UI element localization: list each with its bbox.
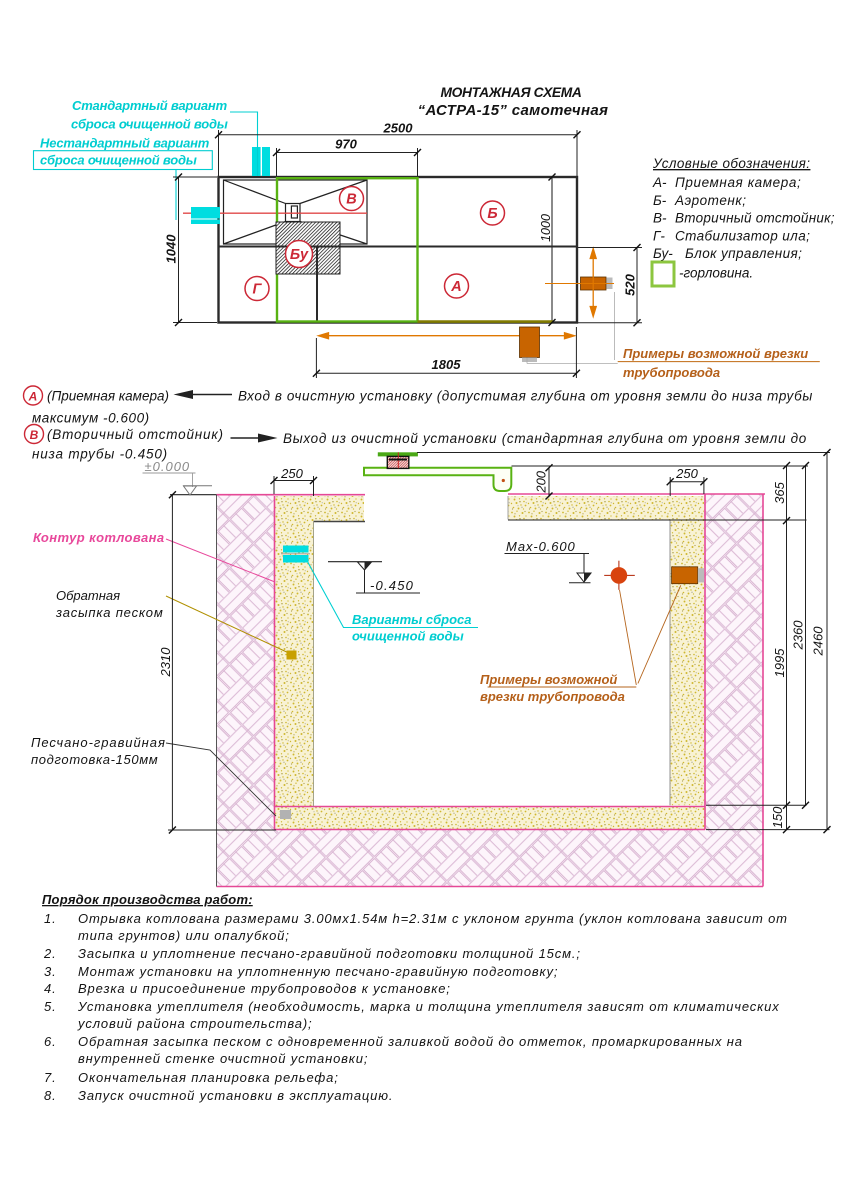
svg-text:2310: 2310 [158,647,173,678]
svg-text:Б-: Б- [653,193,667,208]
svg-text:Блок управления;: Блок управления; [685,246,802,261]
svg-text:Песчано-гравийная: Песчано-гравийная [31,735,166,750]
svg-text:5.: 5. [44,999,57,1014]
svg-text:Г: Г [253,282,263,298]
svg-text:(Приемная камера): (Приемная камера) [47,389,169,404]
svg-text:150: 150 [770,806,785,828]
svg-text:520: 520 [623,273,638,295]
svg-text:365: 365 [772,481,787,503]
svg-text:Мах-0.600: Мах-0.600 [506,539,576,554]
svg-text:врезки трубопровода: врезки трубопровода [480,689,625,704]
svg-text:6.: 6. [44,1034,57,1049]
svg-text:1.: 1. [44,911,57,926]
svg-text:4.: 4. [44,981,57,996]
svg-text:3.: 3. [44,964,57,979]
svg-text:внутренней стенке очистной уст: внутренней стенке очистной установки; [78,1051,368,1066]
svg-text:Условные обозначения:: Условные обозначения: [652,156,810,171]
svg-text:Г-: Г- [653,228,665,243]
svg-text:Примеры возможной врезки: Примеры возможной врезки [623,346,808,361]
svg-text:2460: 2460 [811,626,826,657]
svg-text:7.: 7. [44,1070,57,1085]
svg-text:Обратная: Обратная [56,588,120,603]
svg-text:200: 200 [534,470,549,493]
svg-text:1040: 1040 [164,234,179,264]
svg-text:Обратная засыпка песком с одно: Обратная засыпка песком с одновременной … [78,1034,743,1049]
svg-text:250: 250 [675,466,698,481]
svg-text:Вход в очистную установку (доп: Вход в очистную установку (допустимая гл… [238,389,813,404]
svg-text:1995: 1995 [772,648,787,678]
svg-text:Контур котлована: Контур котлована [33,530,164,545]
svg-text:сброса очищенной воды: сброса очищенной воды [71,117,228,132]
svg-text:В: В [30,428,39,442]
svg-text:Окончательная планировка релье: Окончательная планировка рельефа; [78,1070,339,1085]
svg-text:Б: Б [487,206,497,222]
svg-text:2500: 2500 [383,121,414,136]
svg-text:1000: 1000 [539,214,553,242]
svg-text:Стабилизатор ила;: Стабилизатор ила; [675,228,810,243]
svg-text:условий района строительства);: условий района строительства); [77,1016,313,1031]
svg-text:Бу-: Бу- [653,246,673,261]
svg-text:-горловина.: -горловина. [679,266,753,281]
svg-text:8.: 8. [44,1088,57,1103]
svg-text:типа грунтов) или опалубкой;: типа грунтов) или опалубкой; [78,928,290,943]
svg-text:“АСТРА-15” самотечная: “АСТРА-15” самотечная [418,102,609,119]
svg-text:970: 970 [335,137,357,152]
svg-text:Установка утеплителя (необходи: Установка утеплителя (необходимость, мар… [77,999,780,1014]
svg-text:Засыпка и уплотнение песчано-г: Засыпка и уплотнение песчано-гравийной п… [78,946,581,961]
svg-text:Нестандартный вариант: Нестандартный вариант [40,136,210,151]
svg-text:А: А [28,390,38,404]
svg-text:максимум -0.600): максимум -0.600) [32,411,150,426]
svg-text:250: 250 [280,466,303,481]
svg-text:Врезка и присоединение трубопр: Врезка и присоединение трубопроводов к у… [78,981,451,996]
svg-text:2360: 2360 [791,620,806,651]
svg-text:В-: В- [653,211,667,226]
svg-text:трубопровода: трубопровода [623,365,720,380]
svg-text:Бу: Бу [290,247,309,263]
svg-text:Отрывка котлована размерами 3.: Отрывка котлована размерами 3.00мх1.54м … [78,911,788,926]
svg-text:Порядок производства работ:: Порядок производства работ: [42,892,253,907]
svg-text:Стандартный вариант: Стандартный вариант [72,98,228,113]
svg-text:Вторичный отстойник;: Вторичный отстойник; [675,211,835,226]
svg-text:(Вторичный отстойник): (Вторичный отстойник) [47,427,224,442]
svg-text:засыпка песком: засыпка песком [55,605,164,620]
svg-text:подготовка-150мм: подготовка-150мм [31,752,158,767]
svg-text:Выход из очистной установки (с: Выход из очистной установки (стандартная… [283,431,807,446]
svg-text:сброса очищенной воды: сброса очищенной воды [40,153,197,168]
svg-text:А-: А- [652,175,667,190]
svg-text:-0.450: -0.450 [370,578,414,593]
svg-text:Приемная камера;: Приемная камера; [675,175,801,190]
svg-text:Монтаж установки на уплотненну: Монтаж установки на уплотненную песчано-… [78,964,558,979]
svg-text:А: А [450,279,461,295]
svg-text:очищенной воды: очищенной воды [352,629,464,644]
svg-text:Примеры возможной: Примеры возможной [480,672,617,687]
svg-text:низа трубы -0.450): низа трубы -0.450) [32,447,168,462]
svg-text:2.: 2. [43,946,57,961]
svg-text:МОНТАЖНАЯ СХЕМА: МОНТАЖНАЯ СХЕМА [440,85,581,100]
svg-text:Запуск очистной установки в эк: Запуск очистной установки в эксплуатацию… [78,1088,393,1103]
svg-text:1805: 1805 [432,357,462,372]
svg-text:Варианты сброса: Варианты сброса [352,612,471,627]
svg-text:Аэротенк;: Аэротенк; [674,193,746,208]
svg-text:В: В [346,192,356,208]
